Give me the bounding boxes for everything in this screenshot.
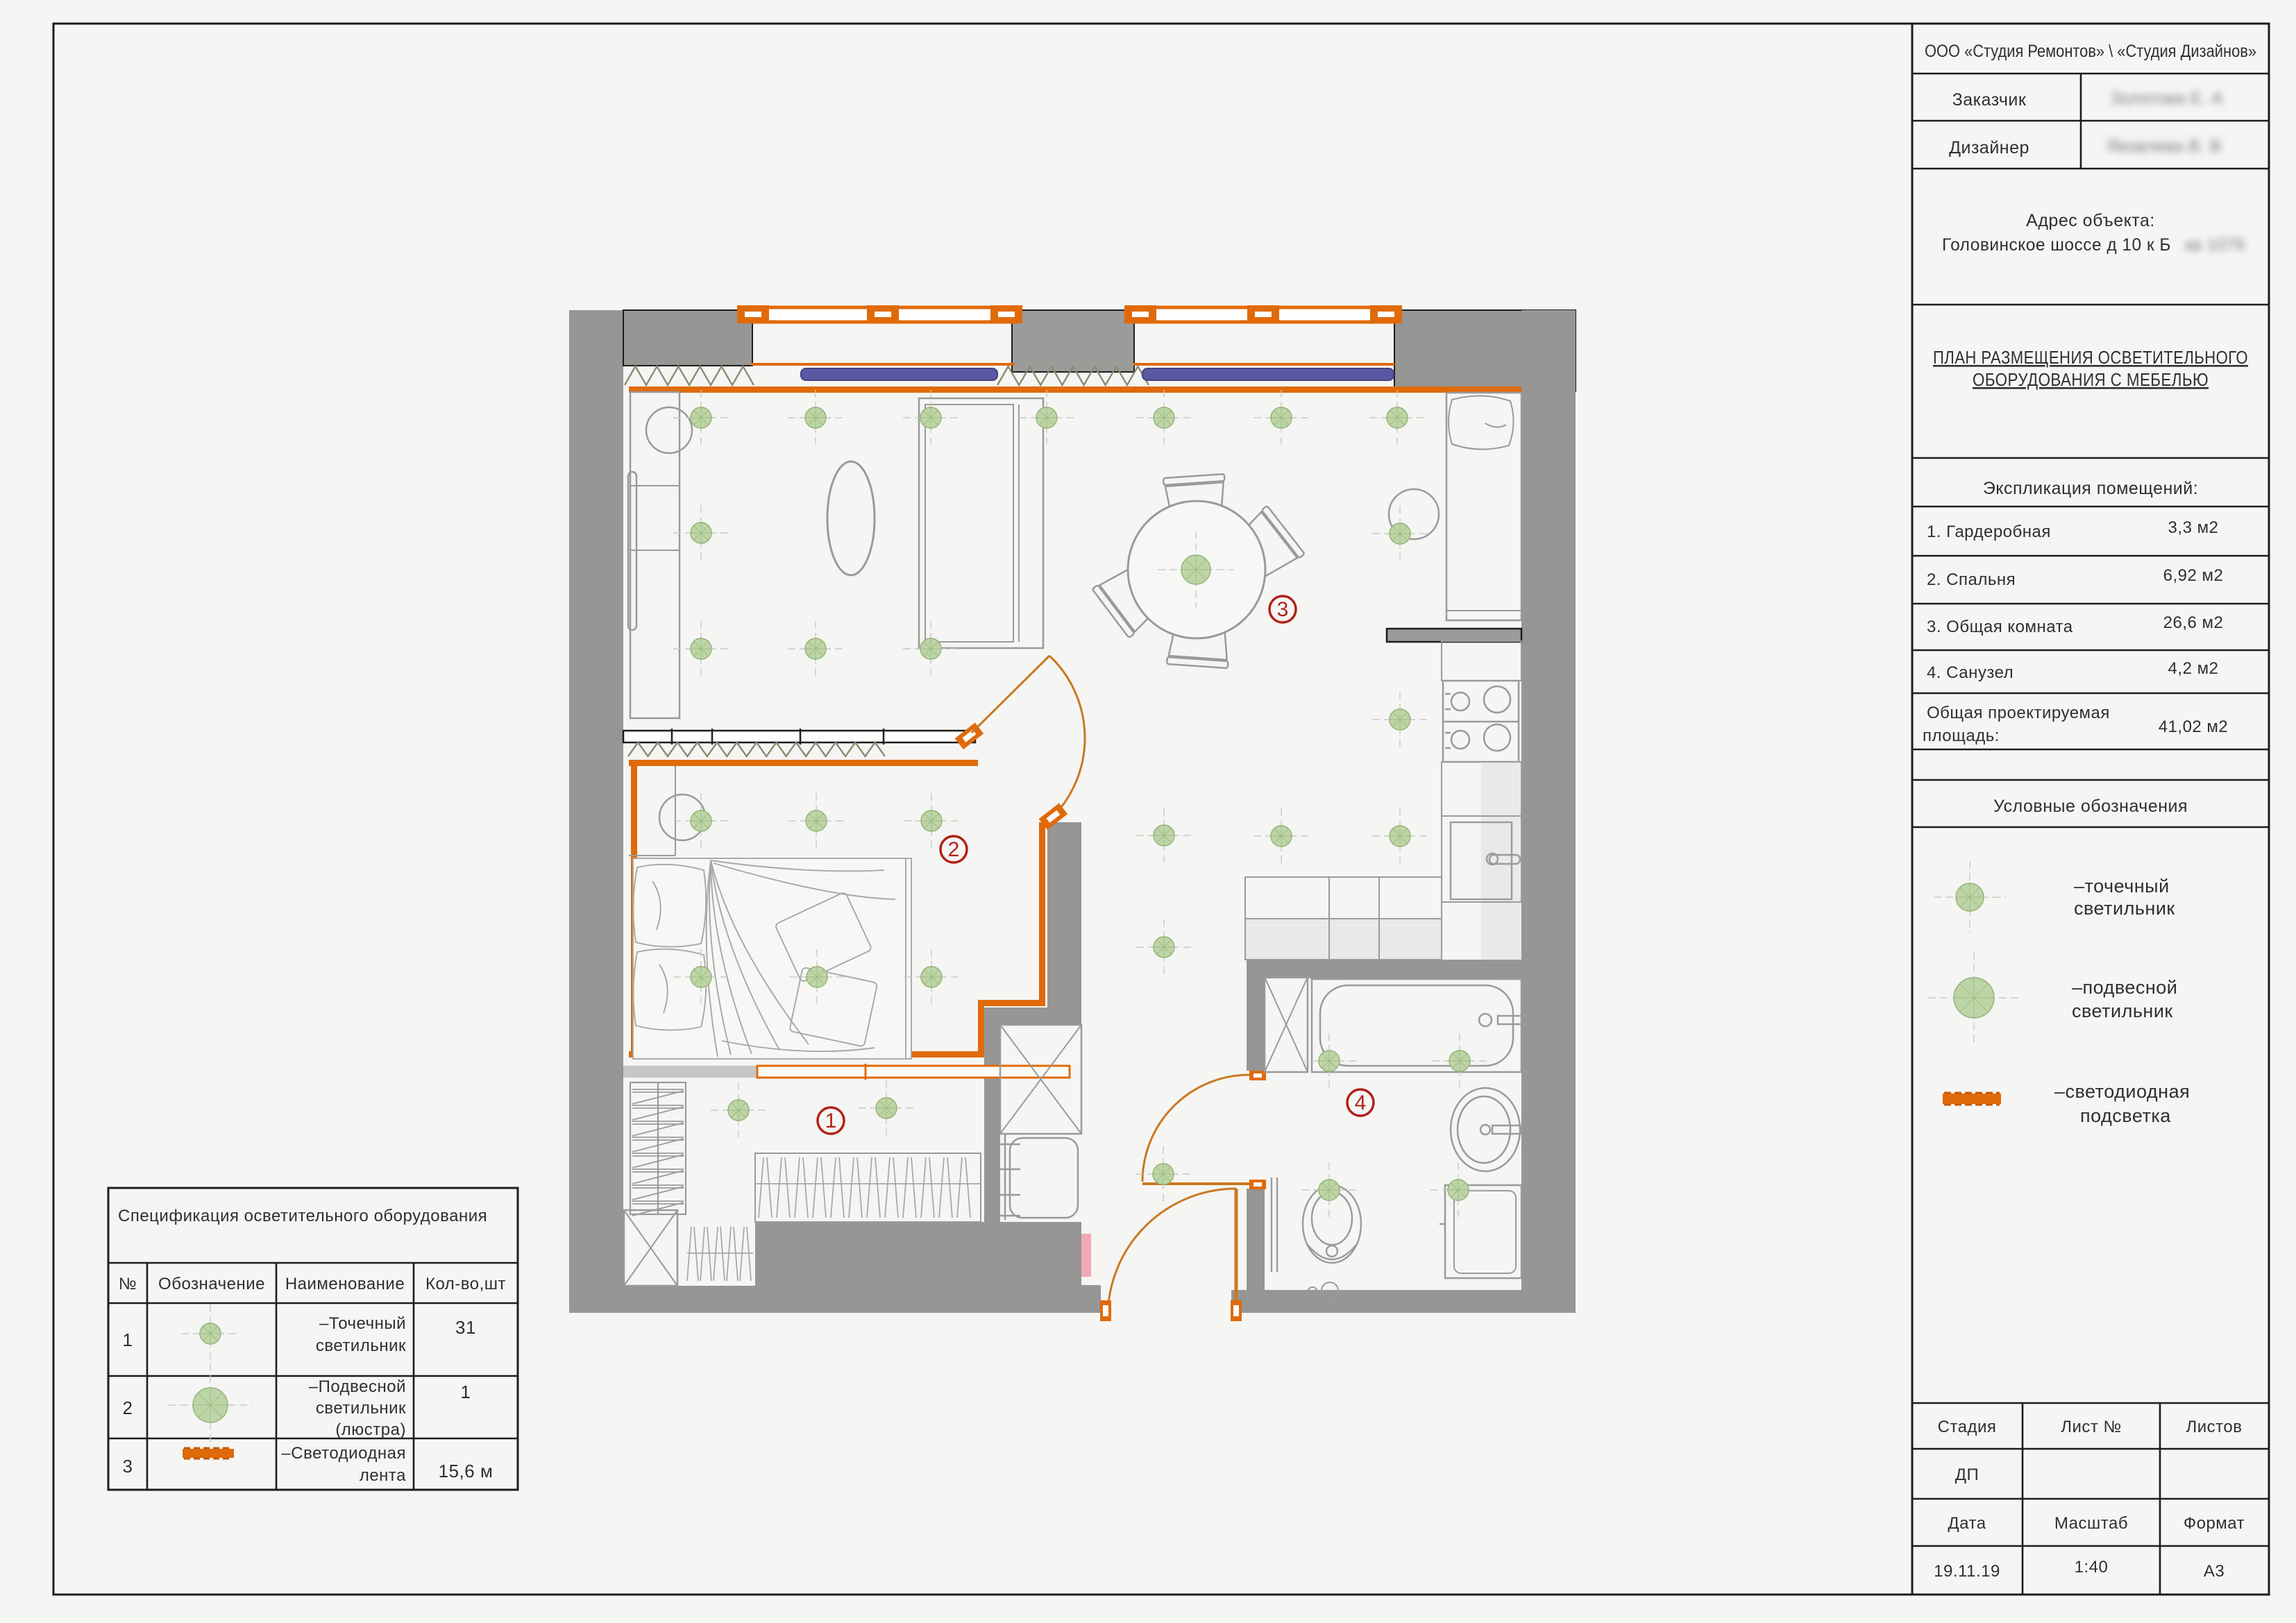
svg-text:Листов: Листов [2186,1418,2243,1436]
svg-text:Формат: Формат [2184,1514,2245,1533]
svg-text:1. Гардеробная: 1. Гардеробная [1927,522,2051,541]
svg-text:2: 2 [948,838,960,861]
svg-text:Обозначение: Обозначение [158,1275,265,1293]
svg-text:4: 4 [1355,1091,1367,1114]
svg-text:А3: А3 [2204,1562,2225,1581]
svg-text:26,6 м2: 26,6 м2 [2163,613,2224,632]
svg-text:3: 3 [123,1456,133,1477]
svg-text:площадь:: площадь: [1923,726,2000,745]
svg-text:лента: лента [360,1466,406,1485]
svg-text:–Подвесной: –Подвесной [309,1377,406,1396]
svg-text:19.11.19: 19.11.19 [1934,1562,2000,1581]
svg-text:41,02 м2: 41,02 м2 [2159,717,2229,736]
svg-text:Условные обозначения: Условные обозначения [1993,797,2188,816]
svg-text:1: 1 [825,1110,837,1132]
svg-text:–светодиодная: –светодиодная [2054,1081,2190,1102]
svg-text:1: 1 [123,1329,133,1350]
svg-text:Кол-во,шт: Кол-во,шт [425,1275,506,1293]
svg-text:15,6 м: 15,6 м [439,1461,493,1481]
svg-text:31: 31 [455,1317,476,1338]
svg-text:3: 3 [1277,598,1289,621]
svg-text:(люстра): (люстра) [335,1420,406,1439]
svg-text:Яковлева В. В: Яковлева В. В [2107,137,2221,156]
svg-text:Наименование: Наименование [285,1275,405,1293]
svg-text:Заказчик: Заказчик [1952,90,2027,110]
svg-text:2. Спальня: 2. Спальня [1927,570,2016,589]
svg-text:светильник: светильник [2072,1001,2173,1021]
svg-text:3. Общая комната: 3. Общая комната [1927,618,2073,636]
svg-text:–Точечный: –Точечный [319,1314,406,1333]
svg-text:светильник: светильник [2074,898,2175,919]
svg-text:ДП: ДП [1955,1465,1980,1484]
svg-text:1: 1 [461,1382,471,1402]
svg-text:Масштаб: Масштаб [2054,1514,2128,1533]
svg-text:светильник: светильник [316,1399,406,1418]
svg-text:Спецификация осветительного об: Спецификация осветительного оборудования [118,1207,487,1225]
svg-text:6,92 м2: 6,92 м2 [2163,566,2224,585]
svg-text:подсветка: подсветка [2080,1105,2171,1126]
svg-text:Дата: Дата [1948,1514,1986,1533]
svg-text:Экспликация помещений:: Экспликация помещений: [1983,479,2198,498]
svg-text:кв 1076: кв 1076 [2185,235,2245,255]
svg-text:светильник: светильник [316,1336,406,1355]
svg-text:4,2 м2: 4,2 м2 [2168,659,2219,678]
svg-text:4. Санузел: 4. Санузел [1927,663,2014,682]
svg-text:–подвесной: –подвесной [2072,977,2177,998]
svg-text:Общая проектируемая: Общая проектируемая [1927,704,2110,722]
svg-text:3,3 м2: 3,3 м2 [2168,518,2219,537]
svg-text:1:40: 1:40 [2075,1558,2109,1577]
svg-text:Лист №: Лист № [2061,1418,2122,1436]
svg-text:Адрес объекта:: Адрес объекта: [2026,211,2155,230]
svg-text:ОБОРУДОВАНИЯ С МЕБЕЛЬЮ: ОБОРУДОВАНИЯ С МЕБЕЛЬЮ [1973,369,2209,390]
svg-text:Стадия: Стадия [1938,1418,1997,1436]
svg-text:ООО «Студия Ремонтов» \ «Студи: ООО «Студия Ремонтов» \ «Студия Дизайнов… [1925,42,2256,61]
svg-text:–точечный: –точечный [2074,876,2170,897]
svg-text:Золотова Е. А: Золотова Е. А [2110,89,2223,108]
svg-text:Дизайнер: Дизайнер [1949,138,2029,158]
svg-text:ПЛАН РАЗМЕЩЕНИЯ ОСВЕТИТЕЛЬНОГО: ПЛАН РАЗМЕЩЕНИЯ ОСВЕТИТЕЛЬНОГО [1933,347,2248,368]
svg-text:№: № [119,1275,137,1293]
svg-text:–Светодиодная: –Светодиодная [281,1444,406,1463]
svg-text:Головинское шоссе д 10 к Б: Головинское шоссе д 10 к Б [1942,235,2171,255]
svg-text:2: 2 [123,1397,133,1418]
